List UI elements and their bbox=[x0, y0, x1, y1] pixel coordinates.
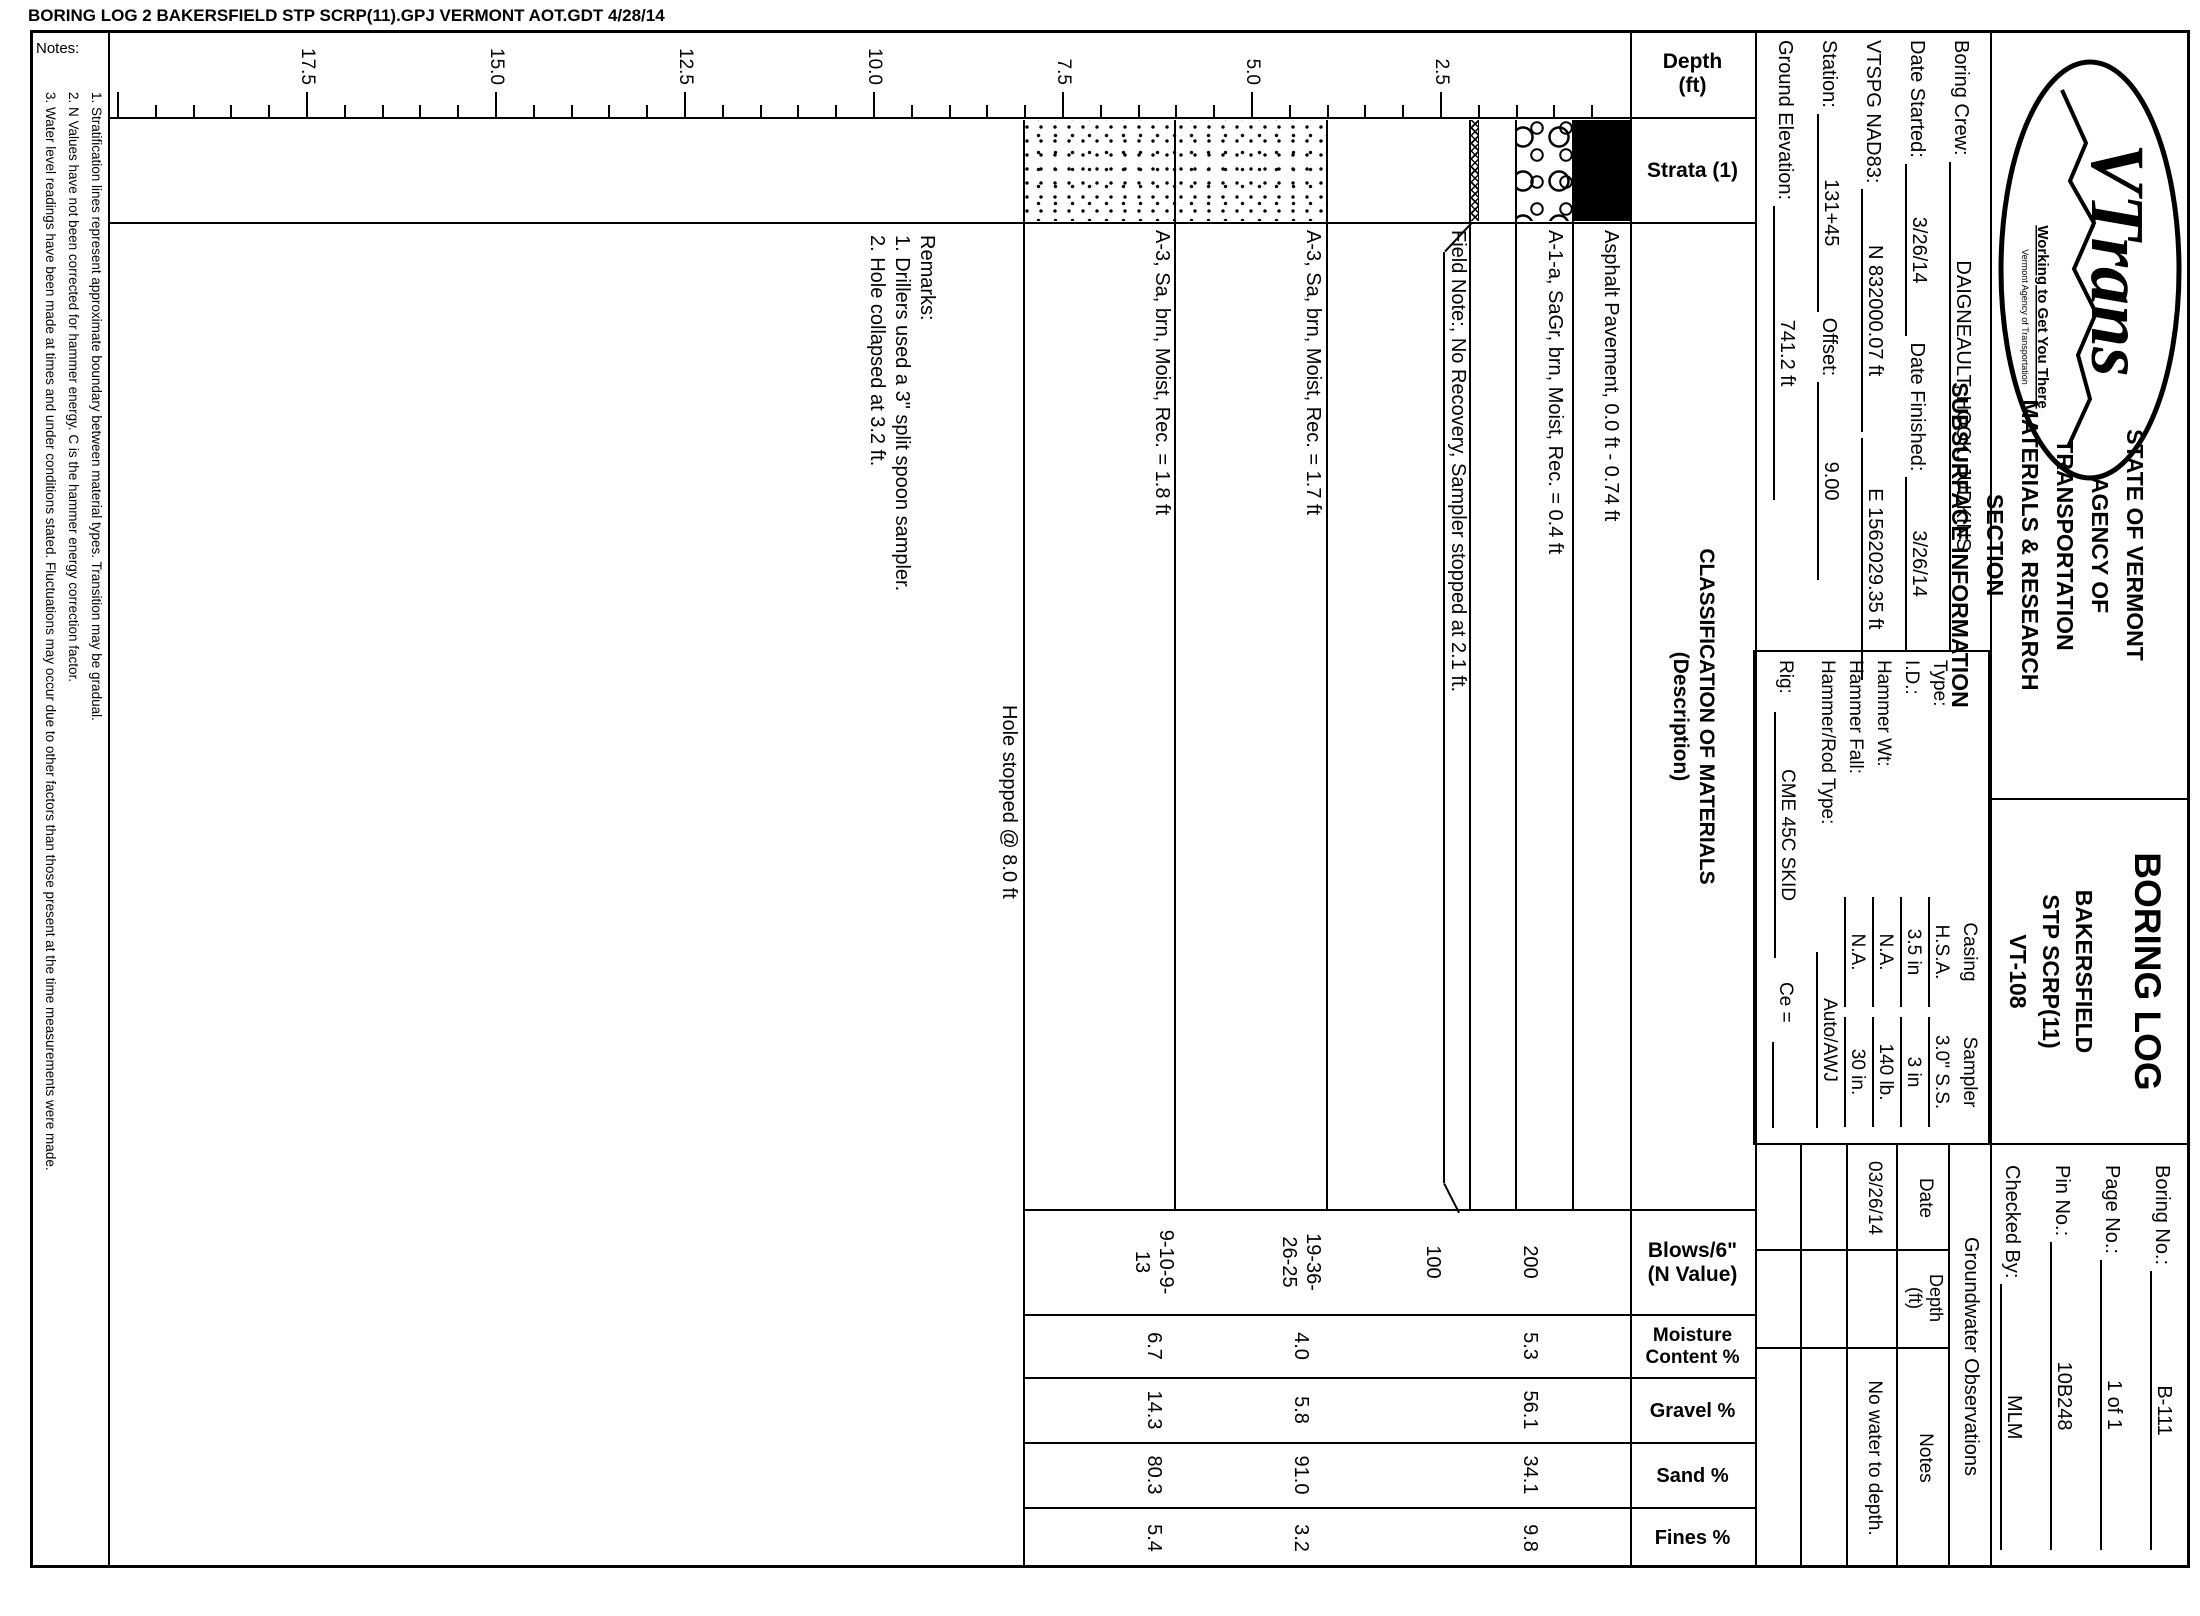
note-1: 1. Stratification lines represent approx… bbox=[89, 92, 104, 721]
depth-major-tick bbox=[117, 92, 119, 118]
sampler-header: Sampler bbox=[1958, 1017, 1980, 1127]
classification-entry: A-3, Sa, brn, Moist, Rec. = 1.8 ft bbox=[1150, 230, 1173, 515]
page-no-value: 1 of 1 bbox=[2100, 1260, 2125, 1550]
hammer-fall-label: Hammer Fall: bbox=[1844, 660, 1866, 774]
casing-header: Casing bbox=[1958, 897, 1980, 1007]
gw-depth-header: Depth (ft) bbox=[1904, 1252, 1946, 1344]
log-header-top-border bbox=[1755, 30, 1757, 1568]
gw-date-value: 03/26/14 bbox=[1863, 1150, 1885, 1246]
titleblock-divider-2 bbox=[1990, 1143, 2190, 1145]
logo-subtext: Vermont Agency of Transportation bbox=[2020, 249, 2030, 385]
depth-minor-tick bbox=[419, 105, 421, 118]
gw-line-2 bbox=[1896, 1145, 1898, 1568]
depth-tick-label: 17.5 bbox=[296, 28, 318, 85]
boring-crew-label: Boring Crew: bbox=[1949, 40, 1972, 156]
hammer-wt-label: Hammer Wt: bbox=[1872, 660, 1894, 767]
depth-tick-label: 12.5 bbox=[674, 28, 696, 85]
depth-minor-tick bbox=[722, 105, 724, 118]
depth-tick-label: 2.5 bbox=[1430, 28, 1452, 85]
depth-major-tick bbox=[1251, 92, 1253, 118]
rig-label: Rig: bbox=[1774, 660, 1796, 694]
stratum-boundary-line bbox=[1515, 120, 1517, 1209]
depth-minor-tick bbox=[1516, 105, 1518, 118]
date-started-value: 3/26/14 bbox=[1905, 164, 1930, 337]
vtspg-label: VTSPG NAD83: bbox=[1861, 40, 1884, 183]
ground-elevation-row: Ground Elevation: 741.2 ft bbox=[1773, 40, 1798, 500]
gw-line-1 bbox=[1948, 1145, 1950, 1568]
depth-minor-tick bbox=[911, 105, 913, 118]
depth-major-tick bbox=[306, 92, 308, 118]
depth-minor-tick bbox=[155, 105, 157, 118]
hammer-fall-casing: N.A. bbox=[1844, 897, 1868, 1007]
hammer-fall-sampler: 30 in. bbox=[1844, 1017, 1868, 1127]
classification-entry: A-3, Sa, brn, Moist, Rec. = 1.7 ft bbox=[1301, 230, 1324, 515]
hammer-wt-sampler: 140 lb. bbox=[1872, 1017, 1896, 1127]
depth-minor-tick bbox=[457, 105, 459, 118]
boring-crew-row: Boring Crew: DAIGNEAULT, HOOK, JUDKINS bbox=[1949, 40, 1974, 650]
pin-no-label: Pin No.: bbox=[2050, 1165, 2073, 1236]
gw-notes-value: No water to depth. bbox=[1863, 1350, 1885, 1566]
depth-minor-tick bbox=[949, 105, 951, 118]
stratum-boundary-line bbox=[1469, 120, 1471, 1209]
note-2: 2. N Values have not been corrected for … bbox=[66, 92, 81, 682]
depth-major-tick bbox=[1440, 92, 1442, 118]
moisture-column-header: Moisture Content % bbox=[1630, 1315, 1755, 1378]
boring-crew-value: DAIGNEAULT, HOOK, JUDKINS bbox=[1949, 162, 1974, 650]
hammer-wt-casing: N.A. bbox=[1872, 897, 1896, 1007]
project-id-block: BAKERSFIELD STP SCRP(11) VT-108 bbox=[2001, 800, 2100, 1143]
stratum-boundary-line bbox=[1174, 120, 1176, 1209]
type-label: Type: bbox=[1928, 660, 1950, 706]
depth-minor-tick bbox=[571, 105, 573, 118]
offset-value: 9.00 bbox=[1817, 382, 1842, 580]
date-finished-label: Date Finished: bbox=[1905, 342, 1928, 471]
northing-value: N 832000.07 ft bbox=[1861, 189, 1886, 431]
hole-stopped-note: Hole stopped @ 8.0 ft bbox=[997, 705, 1020, 899]
stratum-boundary-line bbox=[1326, 120, 1328, 1209]
ground-elevation-label: Ground Elevation: bbox=[1773, 40, 1796, 200]
depth-minor-tick bbox=[986, 105, 988, 118]
gravel-column-header: Gravel % bbox=[1630, 1378, 1755, 1443]
depth-major-tick bbox=[495, 92, 497, 118]
gw-line-4 bbox=[1800, 1145, 1802, 1568]
date-started-label: Date Started: bbox=[1905, 40, 1928, 158]
date-finished-value: 3/26/14 bbox=[1905, 477, 1930, 650]
depth-tick-label: 10.0 bbox=[863, 28, 885, 85]
type-sampler: 3.0" S.S. bbox=[1928, 1017, 1952, 1127]
dates-row: Date Started: 3/26/14 Date Finished: 3/2… bbox=[1905, 40, 1930, 650]
depth-minor-tick bbox=[1138, 105, 1140, 118]
pin-no-row: Pin No.: 10B248 bbox=[2050, 1165, 2075, 1550]
classification-column-header: CLASSIFICATION OF MATERIALS (Description… bbox=[1632, 223, 1755, 1210]
offset-label: Offset: bbox=[1817, 318, 1840, 377]
remarks-item-2: 2. Hole collapsed at 3.2 ft. bbox=[865, 235, 888, 466]
depth-major-tick bbox=[873, 92, 875, 118]
remarks-title: Remarks: bbox=[915, 235, 938, 321]
boring-no-label: Boring No.: bbox=[2150, 1165, 2173, 1265]
strata-layer-asphalt bbox=[1574, 120, 1630, 221]
depth-minor-tick bbox=[268, 105, 270, 118]
project-town: BAKERSFIELD bbox=[2067, 800, 2100, 1143]
strata-layer-sand bbox=[1025, 120, 1327, 221]
blows-value: 100 bbox=[1421, 1210, 1445, 1314]
coordinates-row: VTSPG NAD83: N 832000.07 ft E 1562029.35… bbox=[1861, 40, 1886, 680]
page-no-label: Page No.: bbox=[2100, 1165, 2123, 1254]
depth-minor-tick bbox=[344, 105, 346, 118]
gw-col-divider-1 bbox=[1755, 1249, 1950, 1251]
gw-line-3 bbox=[1846, 1145, 1848, 1568]
boring-log-sheet: BORING LOG 2 BAKERSFIELD STP SCRP(11).GP… bbox=[0, 0, 2200, 1616]
depth-minor-tick bbox=[382, 105, 384, 118]
depth-minor-tick bbox=[533, 105, 535, 118]
id-casing: 3.5 in bbox=[1900, 897, 1924, 1007]
id-label: I.D.: bbox=[1900, 660, 1922, 695]
gw-col-divider-2 bbox=[1755, 1347, 1950, 1349]
depth-minor-tick bbox=[608, 105, 610, 118]
depth-minor-tick bbox=[646, 105, 648, 118]
rod-type-label: Hammer/Rod Type: bbox=[1816, 660, 1838, 824]
fines-column-header: Fines % bbox=[1630, 1508, 1755, 1568]
hole-bottom-line bbox=[1023, 120, 1025, 1567]
depth-tick-label: 15.0 bbox=[485, 28, 507, 85]
logo-brand-text: VTrans bbox=[2075, 143, 2159, 377]
depth-minor-tick bbox=[1591, 105, 1593, 118]
field-note-leader bbox=[1443, 252, 1445, 1183]
strata-layer-gravel bbox=[1517, 120, 1574, 221]
groundwater-title: Groundwater Observations bbox=[1959, 1145, 1982, 1568]
depth-minor-tick bbox=[1364, 105, 1366, 118]
depth-minor-tick bbox=[1213, 105, 1215, 118]
station-label: Station: bbox=[1817, 40, 1840, 108]
rig-value: CME 45C SKID bbox=[1774, 712, 1798, 958]
id-sampler: 3 in bbox=[1900, 1017, 1924, 1127]
notes-label: Notes: bbox=[36, 40, 110, 70]
station-offset-row: Station: 131+45 Offset: 9.00 bbox=[1817, 40, 1842, 580]
gw-date-header: Date bbox=[1914, 1150, 1936, 1246]
depth-minor-tick bbox=[1024, 105, 1026, 118]
boring-no-value: B-111 bbox=[2150, 1271, 2175, 1550]
checked-by-label: Checked By: bbox=[2000, 1165, 2023, 1278]
depth-minor-tick bbox=[797, 105, 799, 118]
depth-major-tick bbox=[684, 92, 686, 118]
ce-label: Ce = bbox=[1774, 982, 1796, 1023]
depth-minor-tick bbox=[835, 105, 837, 118]
stratum-boundary-line bbox=[1572, 120, 1574, 1209]
page: BORING LOG 2 BAKERSFIELD STP SCRP(11).GP… bbox=[0, 0, 2200, 1616]
ce-underline bbox=[1772, 1042, 1774, 1128]
pin-no-value: 10B248 bbox=[2050, 1242, 2075, 1550]
project-road: VT-108 bbox=[2001, 800, 2034, 1143]
gw-notes-header: Notes bbox=[1914, 1350, 1936, 1566]
file-header: BORING LOG 2 BAKERSFIELD STP SCRP(11).GP… bbox=[28, 6, 728, 26]
agency-line-1: STATE OF VERMONT bbox=[2117, 370, 2152, 720]
depth-minor-tick bbox=[1402, 105, 1404, 118]
depth-column-header: Depth (ft) bbox=[1630, 30, 1755, 118]
depth-tick-label: 7.5 bbox=[1052, 28, 1074, 85]
depth-minor-tick bbox=[1100, 105, 1102, 118]
report-title: BORING LOG bbox=[2126, 800, 2168, 1143]
page-no-row: Page No.: 1 of 1 bbox=[2100, 1165, 2125, 1550]
remarks-item-1: 1. Drillers used a 3" split spoon sample… bbox=[890, 235, 913, 591]
strata-right-border bbox=[110, 222, 1630, 224]
notes-top-border bbox=[108, 30, 110, 1568]
depth-minor-tick bbox=[1175, 105, 1177, 118]
strata-column-header: Strata (1) bbox=[1630, 118, 1755, 223]
classification-entry: Field Note:, No Recovery, Sampler stoppe… bbox=[1446, 230, 1469, 692]
depth-minor-tick bbox=[1289, 105, 1291, 118]
depth-minor-tick bbox=[193, 105, 195, 118]
titleblock-bottom-border bbox=[1990, 30, 1992, 1568]
fines-value: 5.4 bbox=[1142, 1486, 1166, 1590]
equipment-box: Casing Sampler Type: H.S.A. 3.0" S.S. I.… bbox=[1753, 650, 1990, 1145]
easting-value: E 1562029.35 ft bbox=[1861, 438, 1886, 680]
depth-minor-tick bbox=[760, 105, 762, 118]
depth-minor-tick bbox=[230, 105, 232, 118]
depth-minor-tick bbox=[1327, 105, 1329, 118]
rod-type-value: Auto/AWJ bbox=[1816, 952, 1840, 1128]
agency-line-2: AGENCY OF TRANSPORTATION bbox=[2047, 370, 2117, 720]
blows-column-header: Blows/6" (N Value) bbox=[1630, 1210, 1755, 1315]
ground-elevation-value: 741.2 ft bbox=[1773, 206, 1798, 500]
depth-minor-tick bbox=[1478, 105, 1480, 118]
note-3: 3. Water level readings have been made a… bbox=[43, 92, 58, 1171]
depth-major-tick bbox=[1062, 92, 1064, 118]
sand-column-header: Sand % bbox=[1630, 1443, 1755, 1508]
depth-minor-tick bbox=[1553, 105, 1555, 118]
classification-entry: Asphalt Pavement, 0.0 ft - 0.74 ft bbox=[1599, 230, 1622, 521]
project-number: STP SCRP(11) bbox=[2034, 800, 2067, 1143]
checked-by-row: Checked By: MLM bbox=[2000, 1165, 2025, 1550]
fines-value: 9.8 bbox=[1518, 1486, 1542, 1590]
type-casing: H.S.A. bbox=[1928, 897, 1952, 1007]
depth-tick-label: 5.0 bbox=[1241, 28, 1263, 85]
boring-no-row: Boring No.: B-111 bbox=[2150, 1165, 2175, 1550]
fines-value: 3.2 bbox=[1289, 1486, 1313, 1590]
classification-entry: A-1-a, SaGr, brn, Moist, Rec. = 0.4 ft bbox=[1543, 230, 1566, 554]
station-value: 131+45 bbox=[1817, 114, 1842, 312]
checked-by-value: MLM bbox=[2000, 1284, 2025, 1550]
